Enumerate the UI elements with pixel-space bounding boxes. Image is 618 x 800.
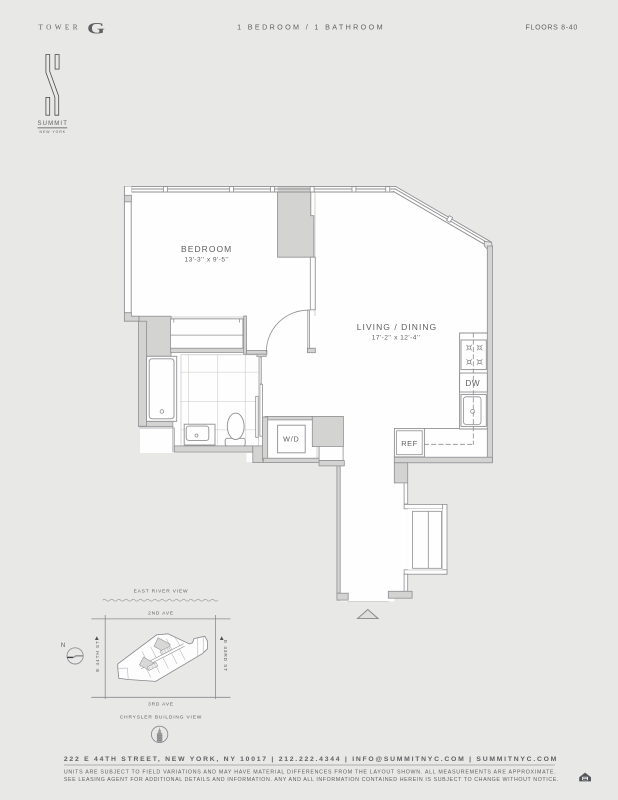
svg-text:E 44TH ST: E 44TH ST [95,640,101,671]
svg-text:BEDROOM: BEDROOM [181,244,232,254]
svg-text:1 BEDROOM / 1 BATHROOM: 1 BEDROOM / 1 BATHROOM [237,22,385,31]
svg-text:2ND AVE: 2ND AVE [148,611,174,617]
svg-text:REF: REF [401,439,418,448]
svg-text:CHRYSLER BUILDING VIEW: CHRYSLER BUILDING VIEW [120,715,202,721]
svg-text:17'-2'' x 12'-4'': 17'-2'' x 12'-4'' [372,335,421,342]
svg-text:NEW YORK: NEW YORK [40,130,67,134]
svg-text:EAST RIVER VIEW: EAST RIVER VIEW [134,588,189,594]
svg-text:DW: DW [465,379,480,388]
svg-text:13'-3'' x 9'-5'': 13'-3'' x 9'-5'' [184,256,228,263]
svg-text:FLOORS 8-40: FLOORS 8-40 [526,24,578,31]
svg-text:G: G [87,20,106,37]
svg-text:E 43RD ST: E 43RD ST [222,640,228,672]
svg-text:SUMMIT: SUMMIT [38,121,69,127]
svg-text:222 E 44TH STREET, NEW YORK, N: 222 E 44TH STREET, NEW YORK, NY 10017 | … [64,756,558,763]
svg-text:LIVING / DINING: LIVING / DINING [357,322,437,332]
svg-text:3RD AVE: 3RD AVE [148,702,174,708]
svg-text:UNITS ARE SUBJECT TO FIELD VAR: UNITS ARE SUBJECT TO FIELD VARIATIONS AN… [64,769,556,775]
svg-text:W/D: W/D [283,435,299,444]
svg-text:TOWER: TOWER [39,24,81,32]
svg-text:N: N [61,642,65,649]
svg-text:SEE LEASING AGENT FOR ADDITION: SEE LEASING AGENT FOR ADDITIONAL DETAILS… [64,777,559,783]
